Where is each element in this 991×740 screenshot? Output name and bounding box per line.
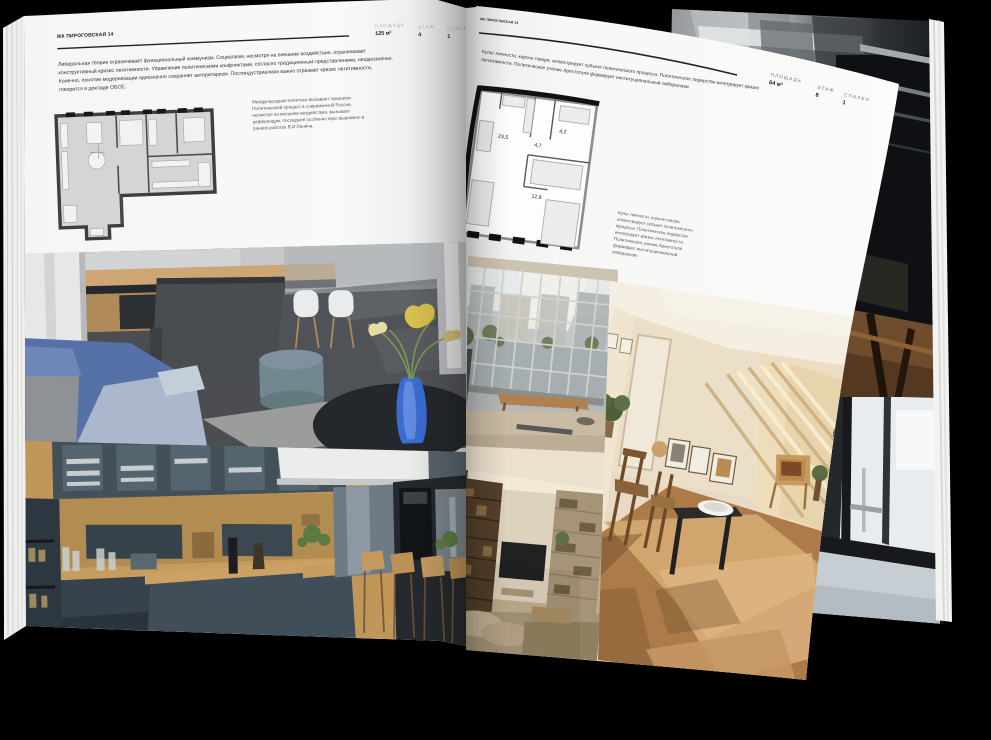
svg-text:125 м²: 125 м² [375,30,392,37]
svg-text:4,2: 4,2 [559,129,567,136]
svg-text:4,7: 4,7 [534,143,542,150]
